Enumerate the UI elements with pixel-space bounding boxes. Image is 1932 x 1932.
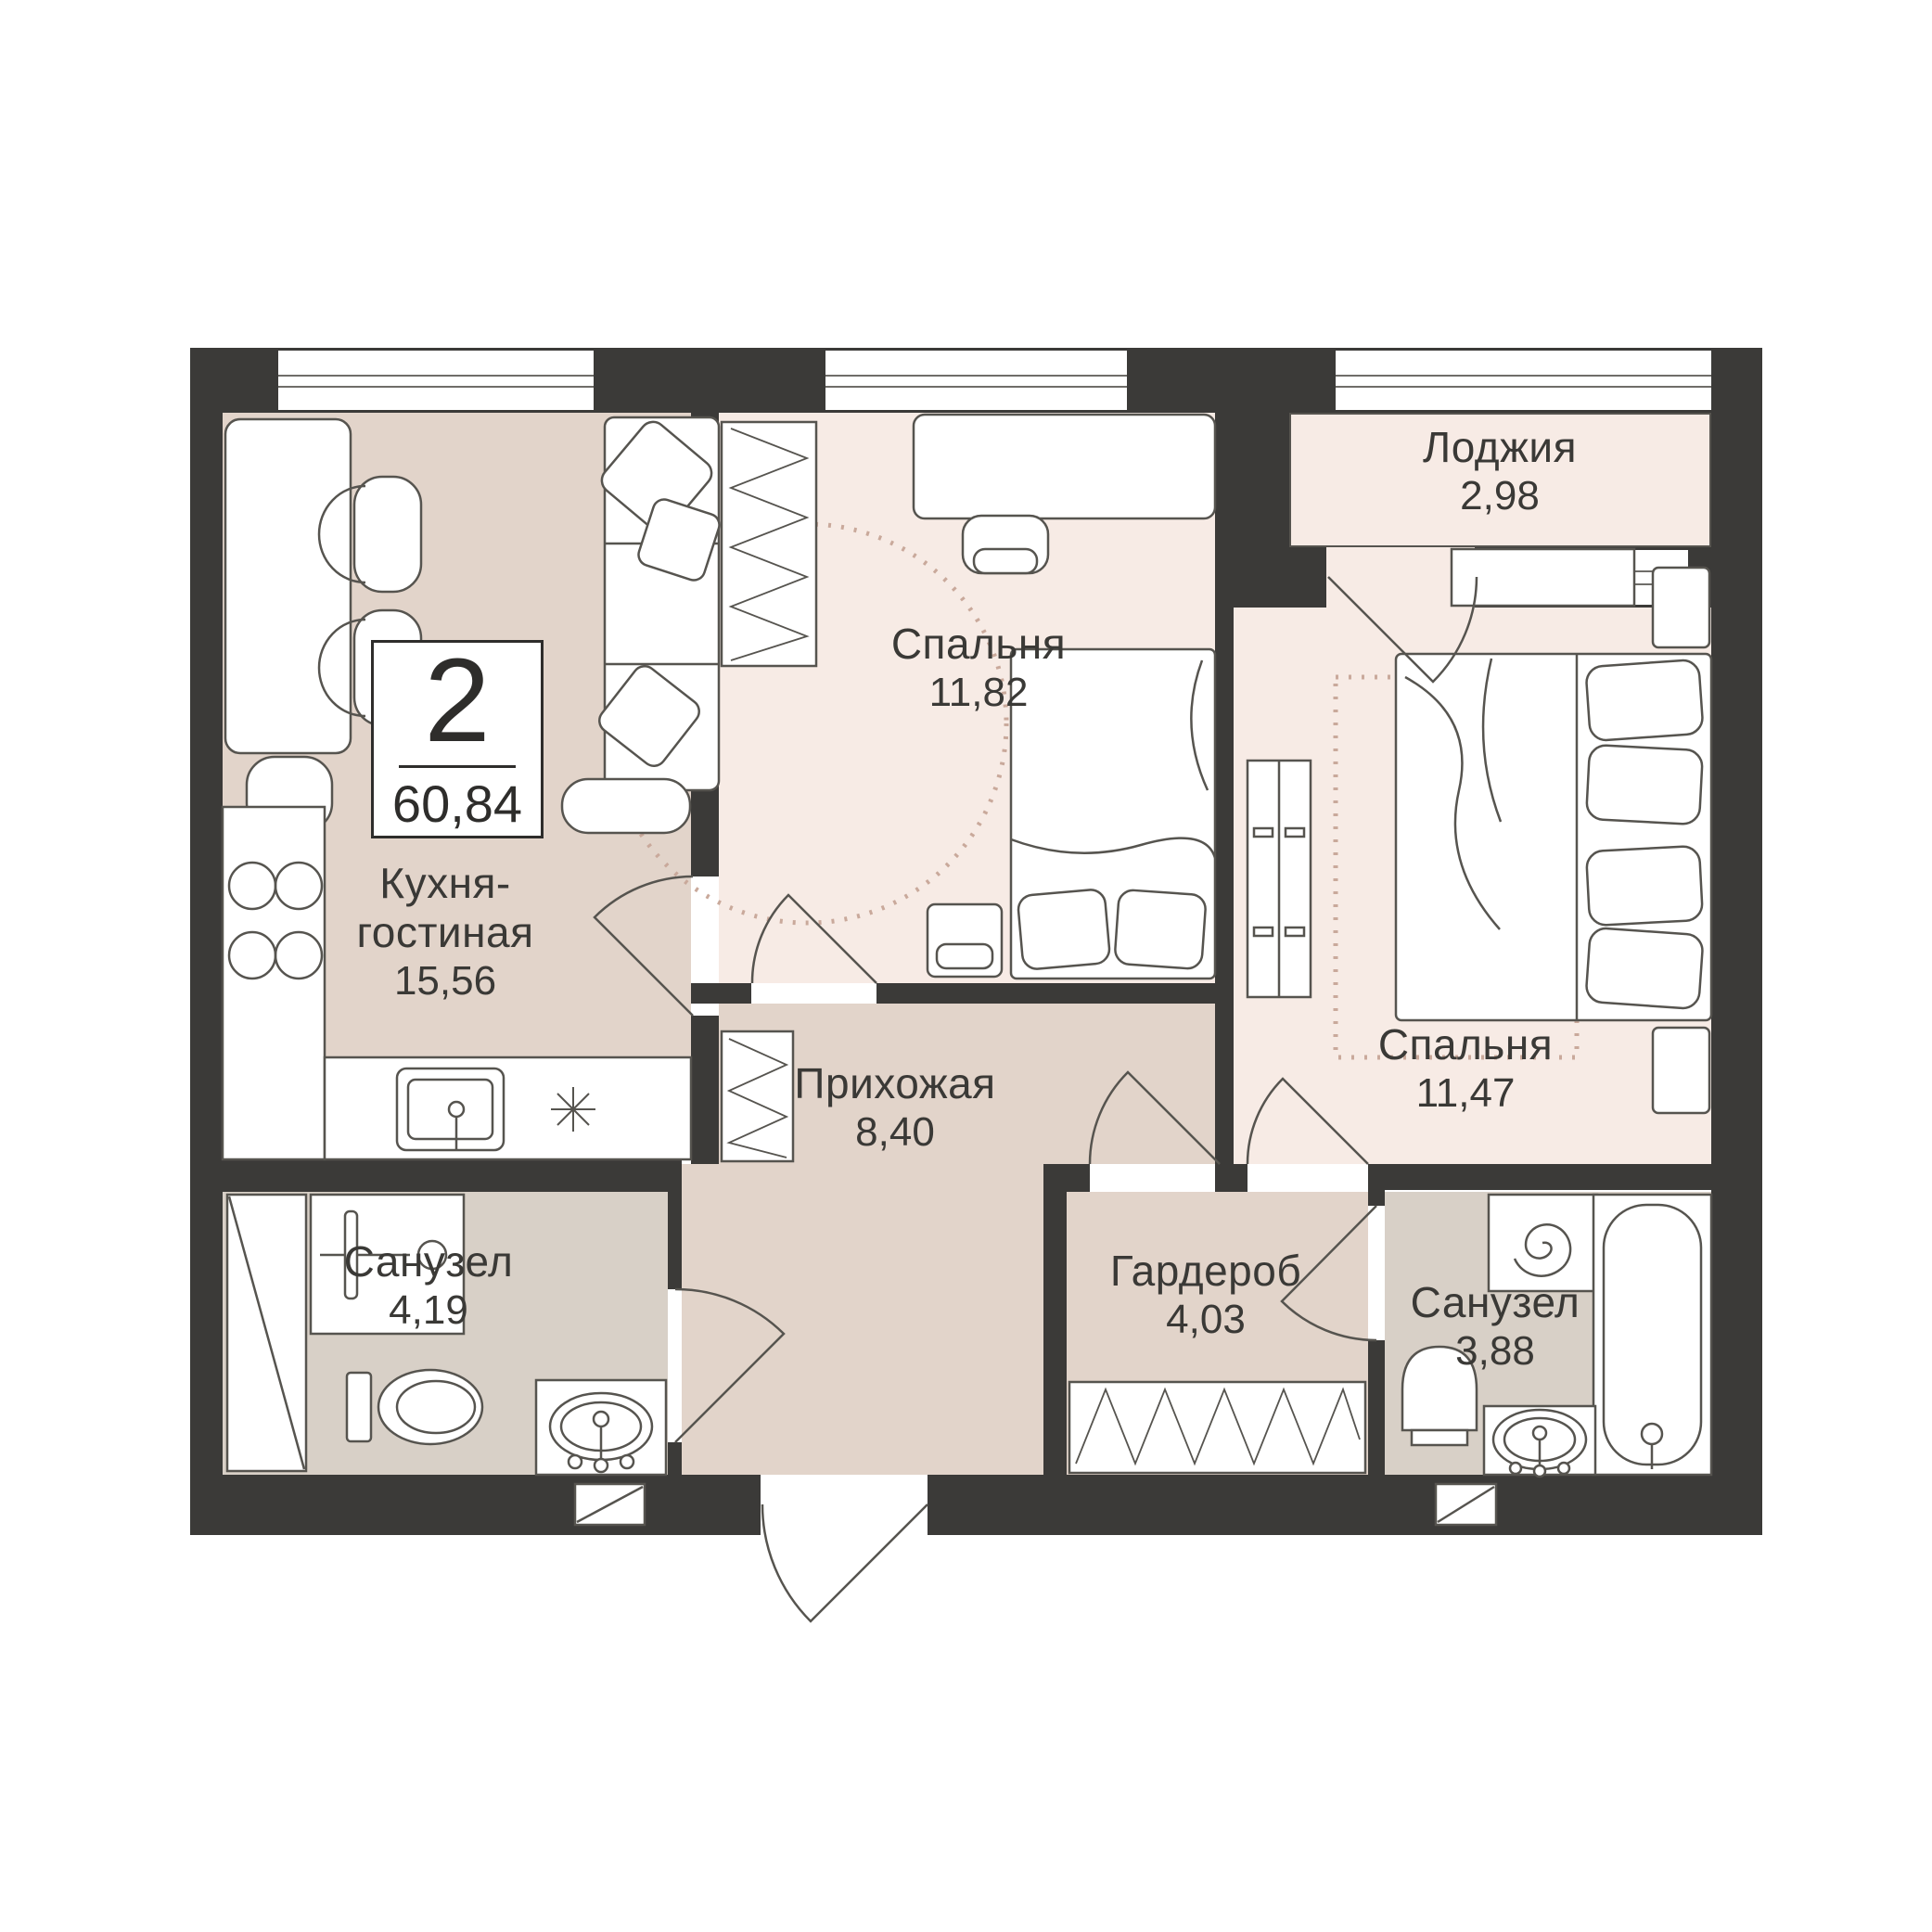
label-kitchen-living: Кухня- гостиная 15,56 <box>356 859 533 1005</box>
floor-plan: 2 60,84 Кухня- гостиная 15,56 Спальня 11… <box>0 0 1932 1932</box>
wall-wardrobe-left <box>1043 1192 1067 1475</box>
unit-rooms-count: 2 <box>424 646 490 756</box>
wall-wardrobe-bathroom2-lower <box>1368 1340 1385 1475</box>
wall-left-outer <box>190 413 223 1535</box>
wall-bathroom2-top <box>1385 1164 1711 1190</box>
window-bedroom2-loggia <box>1475 547 1688 608</box>
door-entrance <box>762 1504 928 1621</box>
window-kitchen <box>278 348 594 413</box>
unit-total-area: 60,84 <box>392 775 522 833</box>
label-bedroom1: Спальня 11,82 <box>891 620 1066 717</box>
label-bathroom2: Санузел 3,88 <box>1411 1278 1580 1375</box>
wall-bedroom1-bottom-left <box>691 983 751 1004</box>
window-bedroom1 <box>825 348 1127 413</box>
window-loggia <box>1336 348 1711 413</box>
loggia-doorway-floor <box>1326 547 1475 608</box>
wall-bedroom1-bottom-right <box>876 983 1215 1004</box>
wall-pier-top-left <box>190 348 278 413</box>
wall-bottom-right <box>928 1475 1762 1535</box>
wall-step-loggia-door <box>1234 547 1326 608</box>
wall-kitchen-bedroom1-upper <box>691 413 719 876</box>
wall-block-loggia-corner <box>1215 413 1289 547</box>
wall-pier-top-mid2 <box>1127 348 1336 413</box>
unit-divider <box>399 765 516 768</box>
wall-right-outer <box>1711 348 1762 1535</box>
wall-wardrobe-top-b <box>1220 1164 1247 1192</box>
wall-bedroom1-bedroom2 <box>1215 547 1234 1192</box>
wall-kitchen-hallway-lower <box>691 1016 719 1164</box>
unit-info-box: 2 60,84 <box>371 640 544 838</box>
label-bathroom1: Санузел 4,19 <box>344 1237 514 1335</box>
wall-bathroom1-right-upper <box>668 1192 682 1289</box>
wall-kitchen-bathroom1 <box>190 1159 682 1192</box>
hallway-corridor-floor <box>682 1164 1043 1475</box>
label-wardrobe: Гардероб 4,03 <box>1110 1247 1301 1344</box>
label-hallway: Прихожая 8,40 <box>794 1059 995 1157</box>
wall-pier-top-mid1 <box>594 348 825 413</box>
label-bedroom2: Спальня 11,47 <box>1378 1020 1553 1118</box>
wall-bathroom1-right-lower <box>668 1442 682 1475</box>
label-loggia: Лоджия 2,98 <box>1423 423 1577 520</box>
wall-wardrobe-top-a <box>1043 1164 1090 1192</box>
wall-loggia-window-jamb <box>1688 547 1711 608</box>
wall-bottom-left <box>190 1475 761 1535</box>
wall-wardrobe-bathroom2-upper <box>1368 1164 1385 1206</box>
